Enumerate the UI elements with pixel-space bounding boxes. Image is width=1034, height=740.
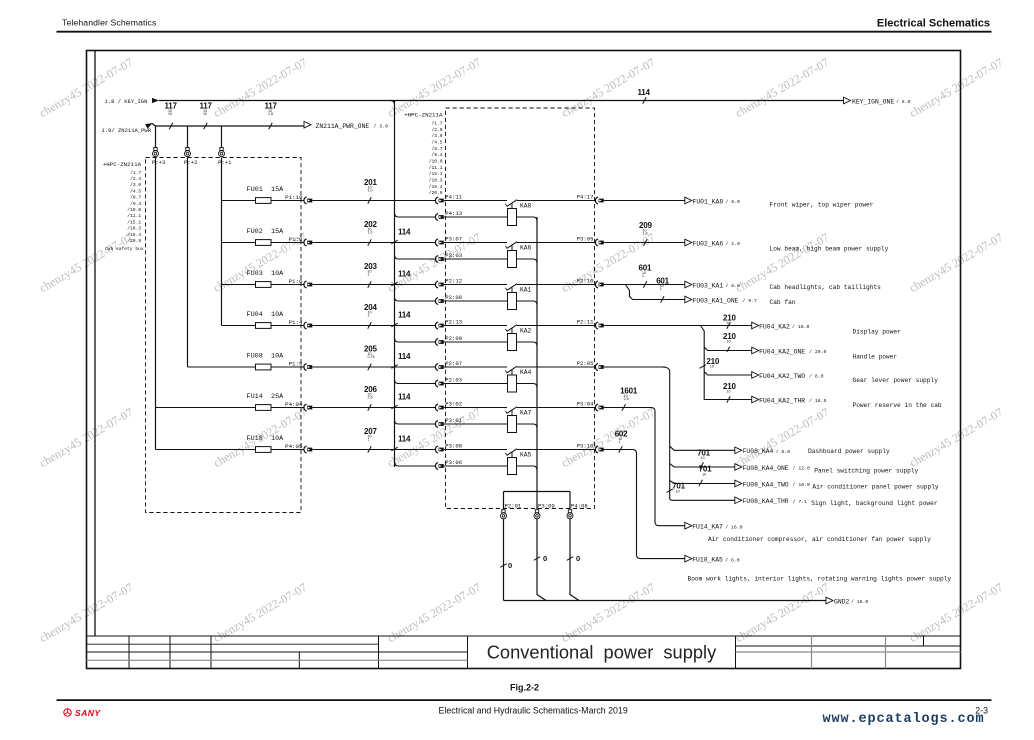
svg-text:/ 16.0: / 16.0	[793, 482, 810, 488]
svg-text:P3:03: P3:03	[445, 252, 462, 259]
svg-text:P2:03: P2:03	[445, 376, 462, 383]
svg-text:Cab safety box: Cab safety box	[105, 246, 144, 252]
svg-text:/ 7.1: / 7.1	[793, 499, 808, 505]
svg-text:Boom work lights, interior lig: Boom work lights, interior lights, rotat…	[688, 576, 952, 583]
svg-text:P3:05: P3:05	[577, 235, 594, 242]
svg-text:P:+2: P:+2	[184, 159, 197, 166]
svg-text:10: 10	[727, 390, 731, 394]
svg-text:KA7: KA7	[520, 410, 532, 417]
svg-text:25A: 25A	[271, 393, 284, 401]
svg-text:/ 8.0: / 8.0	[896, 99, 911, 105]
svg-text:P2:11: P2:11	[577, 318, 594, 325]
svg-text:2.5: 2.5	[368, 395, 373, 399]
svg-text:FU08_KA4_TWO: FU08_KA4_TWO	[743, 481, 789, 488]
svg-text:0: 0	[576, 554, 580, 563]
svg-text:/9.4: /9.4	[431, 152, 442, 158]
svg-text:/18.4: /18.4	[429, 184, 443, 190]
svg-text:/ 6.0: / 6.0	[725, 557, 740, 563]
svg-text:/18.3: /18.3	[429, 177, 443, 183]
svg-text:P3:09: P3:09	[538, 502, 555, 509]
svg-text:/4.5: /4.5	[130, 188, 141, 194]
svg-text:P4:13: P4:13	[445, 210, 462, 217]
svg-text:/ 6.0: / 6.0	[726, 199, 741, 205]
svg-text:Sign light, background light p: Sign light, background light power	[811, 500, 938, 507]
svg-text:Electrical and Hydraulic Schem: Electrical and Hydraulic Schematics-Marc…	[439, 706, 628, 716]
svg-text:/ 1.0: / 1.0	[726, 241, 741, 247]
svg-text:/9.4: /9.4	[130, 201, 141, 207]
svg-text:10A: 10A	[271, 311, 284, 319]
svg-text:114: 114	[398, 352, 411, 361]
svg-text:/3.0: /3.0	[431, 133, 442, 139]
svg-text:P4:04: P4:04	[285, 401, 303, 408]
svg-text:1: 1	[368, 313, 370, 317]
svg-text:114: 114	[398, 435, 411, 444]
svg-text:1: 1	[642, 274, 644, 278]
svg-text:1: 1	[368, 437, 370, 441]
svg-text:Dashboard power supply: Dashboard power supply	[808, 448, 890, 455]
svg-text:0.75: 0.75	[368, 355, 375, 359]
svg-text:P4:08: P4:08	[571, 502, 588, 509]
svg-text:FU02: FU02	[247, 228, 263, 236]
svg-text:Power reserve in the cab: Power reserve in the cab	[853, 402, 942, 409]
svg-text:/ 16.0: / 16.0	[851, 599, 868, 605]
svg-text:/ 16.0: / 16.0	[725, 524, 742, 530]
svg-text:Handle power: Handle power	[853, 353, 898, 360]
svg-text:10: 10	[701, 456, 705, 460]
svg-text:10: 10	[203, 112, 207, 116]
svg-text:FU08_KA4_ONE: FU08_KA4_ONE	[743, 465, 789, 472]
svg-text:2.5: 2.5	[624, 397, 629, 401]
svg-text:FU02_KA6: FU02_KA6	[693, 240, 724, 247]
svg-text:1.0: 1.0	[368, 188, 373, 192]
svg-text:114: 114	[398, 393, 411, 402]
svg-text:P3:07: P3:07	[445, 235, 462, 242]
svg-text:FU18_KA5: FU18_KA5	[692, 556, 723, 563]
svg-text:P1:6: P1:6	[289, 278, 303, 285]
svg-text:/15.1: /15.1	[127, 219, 141, 225]
svg-text:FU03: FU03	[247, 270, 263, 278]
svg-text:/1.7: /1.7	[130, 170, 141, 176]
svg-text:FU03_KA1_ONE: FU03_KA1_ONE	[693, 297, 739, 304]
svg-text:1.8: 1.8	[643, 232, 648, 236]
svg-text:FU08: FU08	[247, 352, 263, 360]
svg-text:FU03_KA1: FU03_KA1	[693, 282, 724, 289]
svg-text:/ 8.0: / 8.0	[809, 374, 824, 380]
svg-text:FU04_KA2_TWO: FU04_KA2_TWO	[759, 373, 805, 380]
svg-text:KA5: KA5	[520, 452, 532, 459]
svg-text:10: 10	[168, 112, 172, 116]
svg-text:FU04_KA2: FU04_KA2	[759, 323, 790, 330]
svg-text:/18.3: /18.3	[127, 226, 141, 232]
svg-text:/2.0: /2.0	[431, 127, 442, 133]
svg-text:P2:07: P2:07	[445, 360, 462, 367]
svg-text:P3:08: P3:08	[445, 442, 462, 449]
svg-text:FU04_KA2_ONE: FU04_KA2_ONE	[759, 348, 805, 355]
svg-text:/20.9: /20.9	[429, 190, 443, 196]
svg-text:FU08_KA4_THR: FU08_KA4_THR	[743, 498, 789, 505]
svg-text:15A: 15A	[271, 228, 284, 236]
svg-text:/4.5: /4.5	[431, 139, 442, 145]
svg-text:1: 1	[618, 440, 620, 444]
svg-text:KEY_IGN_ONE: KEY_IGN_ONE	[852, 98, 894, 105]
svg-text:/ 9.7: / 9.7	[743, 298, 758, 304]
svg-text:Conventional power supply: Conventional power supply	[487, 642, 717, 663]
svg-text:www.epcatalogs.com: www.epcatalogs.com	[823, 712, 985, 727]
svg-text:P4:11: P4:11	[445, 193, 462, 200]
svg-text:/2.4: /2.4	[130, 176, 141, 182]
svg-text:10A: 10A	[271, 270, 284, 278]
svg-text:/ 18.5: / 18.5	[809, 398, 826, 404]
svg-text:FU18: FU18	[247, 435, 263, 443]
svg-text:KA8: KA8	[520, 203, 532, 210]
svg-text:10: 10	[702, 472, 706, 476]
svg-text:P2:01: P2:01	[505, 502, 522, 509]
svg-text:KA4: KA4	[520, 369, 532, 376]
svg-text:P2:10: P2:10	[577, 277, 594, 284]
svg-text:/ 6.0: / 6.0	[726, 283, 741, 289]
svg-text:/ 18.0: / 18.0	[792, 324, 809, 330]
svg-text:P2:13: P2:13	[445, 318, 462, 325]
svg-text:KA2: KA2	[520, 328, 532, 335]
svg-text:FU08_KA4: FU08_KA4	[743, 448, 774, 455]
svg-text:KA6: KA6	[520, 245, 532, 252]
svg-text:/8.7: /8.7	[431, 146, 442, 152]
svg-text:1: 1	[368, 272, 370, 276]
svg-text:10: 10	[676, 489, 680, 493]
svg-text:/ 20.0: / 20.0	[809, 349, 826, 355]
svg-text:KA1: KA1	[520, 287, 532, 294]
svg-text:FU04_KA2_THR: FU04_KA2_THR	[759, 397, 805, 404]
svg-text:/ 12.0: / 12.0	[793, 466, 810, 472]
svg-text:Display power: Display power	[853, 328, 902, 335]
svg-text:SANY: SANY	[75, 708, 101, 718]
svg-text:P2:09: P2:09	[445, 335, 462, 342]
svg-text:/10.0: /10.0	[429, 158, 443, 164]
svg-text:P1:10: P1:10	[285, 194, 303, 201]
svg-text:P:+1: P:+1	[218, 159, 232, 166]
svg-text:P1:5: P1:5	[289, 360, 303, 367]
svg-text:FU01_KA8: FU01_KA8	[693, 198, 724, 205]
svg-text:FU04: FU04	[247, 311, 263, 319]
svg-text:Cab headlights, cab taillights: Cab headlights, cab taillights	[770, 284, 882, 291]
svg-text:FU14_KA7: FU14_KA7	[692, 524, 723, 531]
svg-text:10: 10	[710, 365, 714, 369]
svg-text:114: 114	[398, 270, 411, 279]
svg-text:Front wiper, top wiper power: Front wiper, top wiper power	[770, 201, 874, 208]
svg-text:P4:17: P4:17	[577, 193, 594, 200]
svg-text:/20.9: /20.9	[127, 238, 141, 244]
svg-text:Low beam, high beam power supp: Low beam, high beam power supply	[770, 245, 889, 252]
svg-text:114: 114	[398, 228, 411, 237]
svg-text:Fig.2-2: Fig.2-2	[510, 683, 539, 693]
svg-text:15A: 15A	[271, 186, 284, 194]
svg-text:1.8 / KEY_IGN: 1.8 / KEY_IGN	[105, 98, 148, 105]
svg-text:Air conditioner compressor, ai: Air conditioner compressor, air conditio…	[708, 536, 931, 543]
svg-text:10A: 10A	[271, 435, 284, 443]
svg-text:10A: 10A	[271, 352, 284, 360]
svg-text:/11.1: /11.1	[127, 213, 141, 219]
svg-text:/8.7: /8.7	[130, 195, 141, 201]
svg-text:/3.0: /3.0	[130, 182, 141, 188]
svg-text:10: 10	[727, 339, 731, 343]
svg-text:P:+3: P:+3	[152, 159, 165, 166]
svg-text:Telehandler Schematics: Telehandler Schematics	[62, 18, 157, 28]
svg-text:P3:04: P3:04	[577, 400, 594, 407]
svg-text:FU14: FU14	[247, 393, 263, 401]
svg-text:Electrical Schematics: Electrical Schematics	[877, 18, 990, 30]
svg-text:/18.4: /18.4	[127, 232, 141, 238]
svg-text:+HPC-ZN211A: +HPC-ZN211A	[103, 161, 142, 168]
svg-text:+HPC-ZN211A: +HPC-ZN211A	[404, 112, 443, 119]
svg-text:P2:08: P2:08	[445, 294, 462, 301]
svg-text:/1.7: /1.7	[431, 121, 442, 127]
svg-text:P1:8: P1:8	[289, 236, 303, 243]
svg-text:P2:12: P2:12	[445, 277, 462, 284]
svg-text:/10.0: /10.0	[127, 207, 141, 213]
svg-text:114: 114	[638, 88, 651, 97]
svg-text:Air conditioner panel power su: Air conditioner panel power supply	[812, 484, 939, 491]
svg-text:0: 0	[543, 554, 547, 563]
svg-text:1.9/ ZN211A_PWR: 1.9/ ZN211A_PWR	[102, 127, 152, 134]
svg-text:P3:06: P3:06	[445, 459, 462, 466]
svg-text:/ 8.0: / 8.0	[776, 449, 791, 455]
svg-text:P3:10: P3:10	[577, 442, 594, 449]
svg-text:/15.1: /15.1	[429, 171, 443, 177]
svg-text:FU01: FU01	[247, 186, 263, 194]
svg-text:P1:4: P1:4	[289, 319, 303, 326]
svg-text:ZN211A_PWR_ONE: ZN211A_PWR_ONE	[316, 123, 370, 130]
svg-text:P3:01: P3:01	[445, 417, 462, 424]
svg-text:114: 114	[398, 311, 411, 320]
svg-text:0: 0	[508, 561, 512, 570]
svg-text:Panel switching power supply: Panel switching power supply	[814, 467, 918, 474]
svg-text:P3:02: P3:02	[445, 400, 462, 407]
svg-text:1: 1	[660, 287, 662, 291]
svg-text:1.8: 1.8	[268, 112, 273, 116]
svg-text:/11.1: /11.1	[429, 165, 443, 171]
svg-text:Cab fan: Cab fan	[770, 299, 796, 306]
svg-text:P4:05: P4:05	[285, 443, 303, 450]
svg-text:/ 3.0: / 3.0	[374, 124, 389, 130]
svg-text:Gear lever power supply: Gear lever power supply	[853, 377, 939, 384]
svg-text:GND2: GND2	[834, 598, 850, 605]
svg-text:1.0: 1.0	[368, 230, 373, 234]
svg-text:P2:05: P2:05	[577, 360, 594, 367]
